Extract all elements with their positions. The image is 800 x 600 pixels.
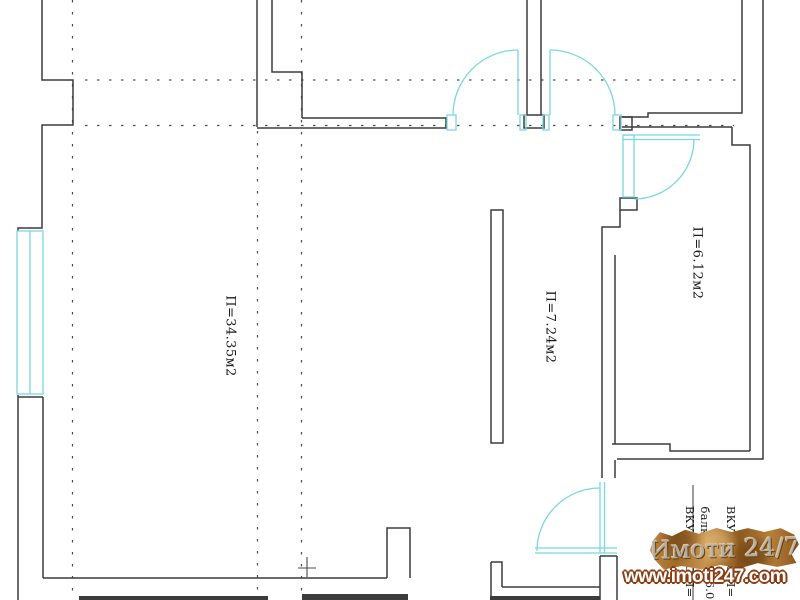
survey-cross [298,557,316,577]
watermark-url-text: www.imoti247.com [610,566,800,588]
bottom-wall-bars [79,594,600,600]
door-swing-arc [537,488,600,551]
bottom-bar-left [79,596,268,600]
walls [18,0,763,600]
wall-balcony-bottom [612,444,750,451]
wall-bottom-center-step [491,562,600,600]
area-label-hall: П=7.24м2 [543,291,558,364]
wall-balcony-right-inner [732,127,750,451]
door-swing-arc [634,139,694,199]
wall-jamb-right [620,117,632,130]
wall-pier-bottom [387,528,410,578]
wall-top-double [257,118,446,128]
door-balcony [623,135,700,199]
wall-top-right [620,0,742,117]
area-label-balcony: П=6.12м2 [690,227,705,300]
wall-mid-right [602,210,620,478]
wall-top-center-step [272,0,302,118]
floor-plan-drawing [0,0,800,600]
grid-dashed-lines [73,0,743,600]
wall-left-below-window [18,395,43,600]
door-swing-arc-left [453,50,518,115]
bottom-bar-mid [302,594,408,600]
door-jamb [447,115,456,130]
door-leaf [623,135,634,197]
door-swing-arc-right [550,50,615,115]
wall-step-block [620,198,637,210]
partition-column [491,210,503,443]
door-bottom [535,482,617,553]
wall-left-outer [18,0,73,231]
door-leaf [600,482,605,553]
bottom-bar-right [490,596,600,600]
wall-entry-stub [527,0,541,115]
window-left [17,231,43,394]
double-door-center [447,50,621,130]
area-label-livingroom: П=34.35м2 [223,295,238,376]
annotation-total-right-top: ВКУ [724,506,738,532]
annotation-total-left-top: ВКУ [683,506,697,532]
floor-plan-page: П=34.35м2 П=7.24м2 П=6.12м2 ВКУ С П= бал… [0,0,800,600]
watermark-brand-text: Имоти 24/7 [649,532,800,565]
